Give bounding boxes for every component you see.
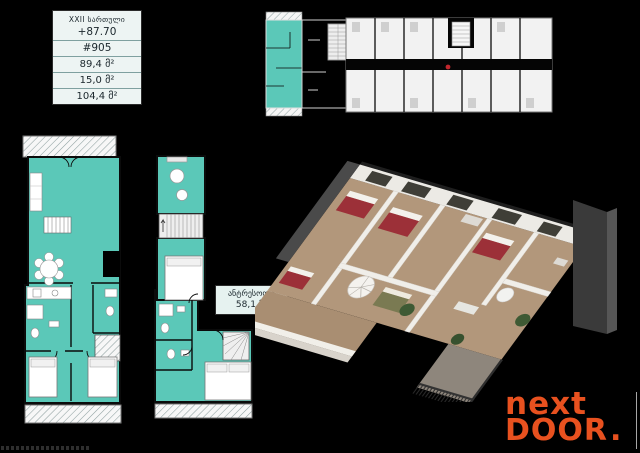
unit-number: #905: [53, 40, 141, 56]
pillow-2: [229, 364, 249, 372]
elevation-value: +87.70: [53, 26, 141, 39]
kitchen: [27, 287, 71, 299]
round-table-1: [170, 169, 184, 183]
toilet-icon: [106, 306, 114, 316]
corridor-lines: [302, 40, 326, 90]
building-overview-plan: [262, 10, 555, 120]
unit-905-highlight: [266, 12, 302, 116]
upper-room-outline: [157, 156, 205, 214]
floor-label: XXII სართული: [53, 13, 141, 26]
right-tower: [573, 200, 617, 334]
render-3d-cutaway: [255, 138, 640, 402]
logo-period: .: [610, 413, 622, 448]
balcony-bottom: [25, 405, 121, 423]
bedroom-1: [29, 357, 57, 397]
unit-905-balcony-top: [266, 12, 302, 20]
isometric-apartment: [255, 158, 598, 402]
pillow: [90, 359, 115, 367]
stairs-block: [159, 214, 203, 238]
toilet-icon: [161, 323, 169, 333]
pillow: [31, 359, 55, 367]
toilet-icon-2: [167, 349, 175, 359]
toilet-icon: [31, 328, 39, 338]
watermark-text: [1, 446, 89, 450]
logo-word-door: DOOR: [505, 413, 608, 448]
sink: [177, 306, 185, 312]
location-marker-dot: [446, 65, 451, 70]
balcony-top: [23, 136, 116, 157]
main-level-plan: [13, 133, 138, 425]
void-niche: [103, 251, 120, 277]
sofa: [30, 173, 42, 211]
fan-stairs: [223, 332, 249, 360]
area-living: 89,4 მ²: [53, 56, 141, 72]
logo-word-door-line: DOOR.: [505, 419, 625, 442]
unit-905-balcony-bottom: [266, 108, 302, 116]
wardrobe: [167, 157, 187, 162]
master-bedroom: [205, 362, 251, 400]
round-table-2: [177, 190, 188, 201]
area-total: 104,4 მ²: [53, 88, 141, 104]
bedroom-2: [88, 357, 117, 397]
shower: [159, 304, 173, 316]
apartment-block: [346, 18, 552, 112]
upper-bedroom-furniture: [165, 256, 203, 300]
nextdoor-logo: next DOOR.: [505, 392, 625, 443]
unit-info-panel: XXII სართული +87.70 #905 89,4 მ² 15,0 მ²…: [52, 10, 142, 105]
sink: [105, 289, 117, 297]
pillow-1: [207, 364, 227, 372]
pillow: [167, 258, 201, 266]
area-balcony: 15,0 მ²: [53, 72, 141, 88]
unit-905-outline: [266, 20, 302, 108]
edge-mark: [636, 392, 637, 449]
sink: [49, 321, 59, 327]
floor-elevation-cell: XXII სართული +87.70: [53, 11, 141, 40]
balcony-bottom: [155, 404, 252, 418]
core-zone: [302, 20, 348, 108]
shower: [27, 305, 43, 319]
